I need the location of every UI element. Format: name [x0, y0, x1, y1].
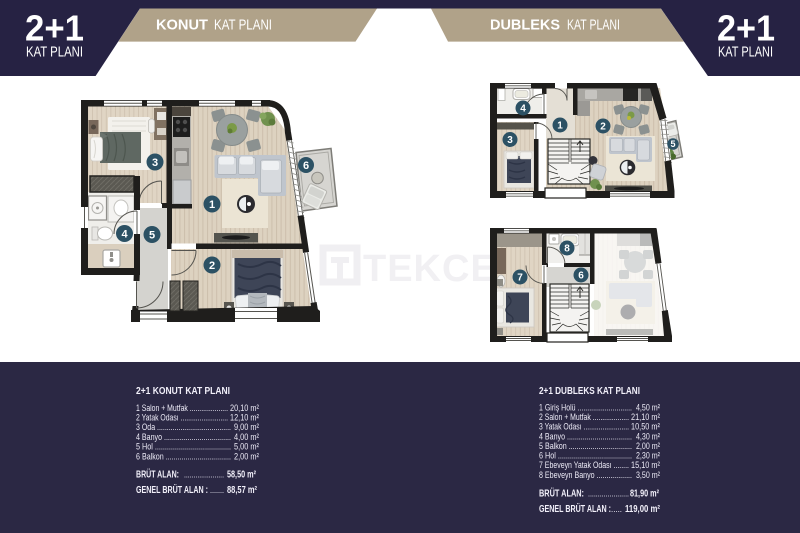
svg-text:21,10 m²: 21,10 m² — [631, 412, 660, 422]
svg-text:KAT PLANI: KAT PLANI — [214, 18, 272, 34]
svg-text:4 Banyo ......................: 4 Banyo ................................… — [136, 432, 231, 442]
svg-text:2+1: 2+1 — [717, 8, 775, 49]
svg-text:5: 5 — [149, 230, 155, 242]
svg-text:88,57 m²: 88,57 m² — [227, 485, 257, 496]
svg-text:.....................: ..................... — [588, 489, 629, 499]
svg-text:20,10 m²: 20,10 m² — [230, 403, 259, 413]
svg-text:6: 6 — [578, 271, 584, 282]
svg-text:1 Giriş Holü .................: 1 Giriş Holü ...........................… — [539, 402, 632, 412]
svg-text:4,00 m²: 4,00 m² — [234, 432, 259, 442]
svg-text:TEKCE: TEKCE — [363, 248, 497, 290]
svg-text:1 Salon + Mutfak .............: 1 Salon + Mutfak .................... — [136, 403, 228, 413]
svg-text:6: 6 — [303, 160, 309, 172]
svg-text:2+1: 2+1 — [25, 8, 84, 49]
svg-text:12,10 m²: 12,10 m² — [230, 413, 259, 423]
svg-text:2,00 m²: 2,00 m² — [234, 451, 259, 461]
svg-text:2: 2 — [600, 122, 606, 133]
svg-text:10,50 m²: 10,50 m² — [631, 422, 660, 432]
svg-text:DUBLEKS: DUBLEKS — [490, 18, 560, 34]
svg-text:5 Balkon .....................: 5 Balkon ...............................… — [539, 441, 632, 451]
svg-text:15,10 m²: 15,10 m² — [631, 460, 660, 470]
svg-text:2,30 m²: 2,30 m² — [636, 451, 660, 461]
svg-text:.......: ....... — [210, 485, 224, 495]
svg-text:KONUT: KONUT — [156, 18, 208, 34]
svg-text:3: 3 — [507, 135, 513, 146]
svg-text:4: 4 — [121, 229, 128, 241]
svg-text:.....................: ..................... — [184, 470, 224, 480]
svg-text:1: 1 — [557, 121, 563, 132]
svg-text:2+1 KONUT KAT PLANI: 2+1 KONUT KAT PLANI — [136, 385, 230, 397]
svg-text:2: 2 — [209, 260, 215, 272]
svg-text:4 Banyo ......................: 4 Banyo ................................… — [539, 431, 632, 441]
svg-text:GENEL BRÜT ALAN :: GENEL BRÜT ALAN : — [539, 502, 611, 515]
svg-text:BRÜT ALAN:: BRÜT ALAN: — [136, 468, 179, 481]
svg-text:2,00 m²: 2,00 m² — [636, 441, 660, 451]
svg-text:2 Salon + Mutfak .............: 2 Salon + Mutfak ................... — [539, 412, 629, 422]
svg-text:GENEL BRÜT ALAN :: GENEL BRÜT ALAN : — [136, 483, 208, 496]
svg-text:4,30 m²: 4,30 m² — [636, 431, 660, 441]
svg-text:2+1 DUBLEKS KAT PLANI: 2+1 DUBLEKS KAT PLANI — [539, 385, 640, 397]
svg-text:KAT PLANI: KAT PLANI — [567, 18, 620, 34]
svg-text:9,00 m²: 9,00 m² — [234, 422, 259, 432]
svg-text:58,50 m²: 58,50 m² — [227, 470, 256, 481]
svg-text:5 Hol ........................: 5 Hol ..................................… — [136, 442, 231, 452]
svg-text:3 Yatak Odası ................: 3 Yatak Odası ........................ — [539, 422, 629, 432]
svg-text:BRÜT ALAN:: BRÜT ALAN: — [539, 487, 584, 500]
svg-text:4: 4 — [520, 104, 526, 115]
svg-text:119,00 m²: 119,00 m² — [625, 504, 661, 515]
svg-text:7: 7 — [517, 273, 523, 284]
svg-text:3,50 m²: 3,50 m² — [636, 470, 660, 480]
svg-text:6 Hol ........................: 6 Hol ..................................… — [539, 451, 632, 461]
svg-text:1: 1 — [209, 199, 215, 211]
svg-text:5,00 m²: 5,00 m² — [234, 442, 259, 452]
svg-text:3 Oda ........................: 3 Oda ..................................… — [136, 422, 231, 432]
svg-text:.....: ..... — [611, 504, 622, 514]
svg-text:6 Balkon .....................: 6 Balkon ...............................… — [136, 451, 231, 461]
svg-text:8 Ebeveyn Banyo ..............: 8 Ebeveyn Banyo .................. — [539, 470, 632, 480]
svg-text:8: 8 — [564, 244, 570, 255]
svg-text:7 Ebeveyn Yatak Odası ........: 7 Ebeveyn Yatak Odası ........ — [539, 460, 629, 470]
svg-text:KAT PLANI: KAT PLANI — [26, 45, 83, 61]
svg-text:81,90 m²: 81,90 m² — [630, 489, 659, 500]
svg-text:5: 5 — [670, 139, 675, 149]
svg-text:4,50 m²: 4,50 m² — [636, 402, 660, 412]
svg-text:3: 3 — [152, 157, 158, 169]
svg-text:KAT PLANI: KAT PLANI — [718, 45, 773, 61]
svg-text:2 Yatak Odası ................: 2 Yatak Odası ......................... — [136, 413, 228, 423]
